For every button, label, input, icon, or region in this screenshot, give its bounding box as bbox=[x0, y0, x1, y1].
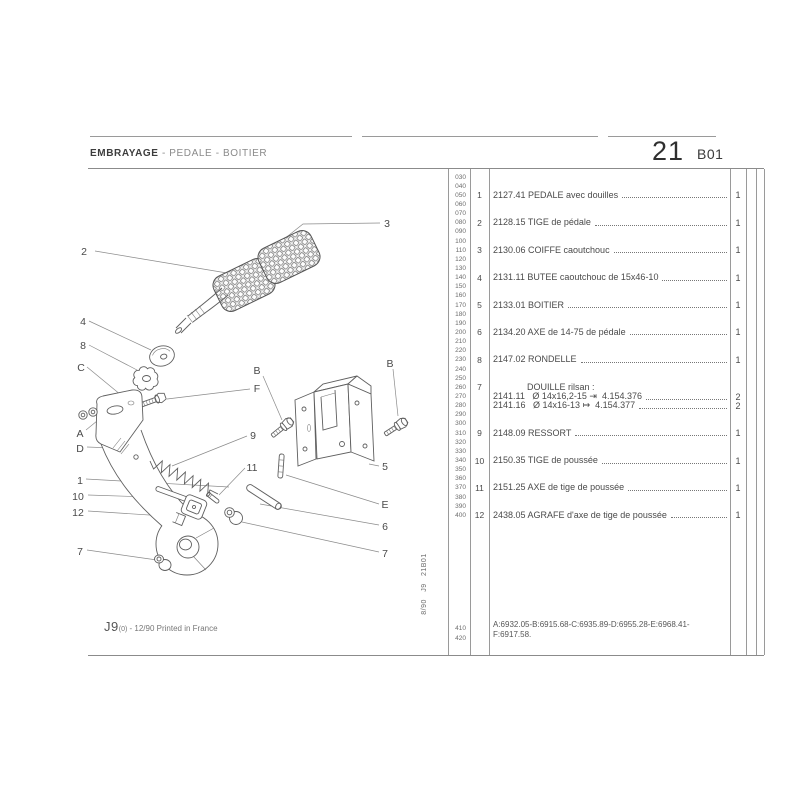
dotted-leader bbox=[662, 280, 727, 281]
rubber-stop-butee bbox=[147, 343, 176, 369]
part-row: 2438.05 AGRAFE d'axe de tige de poussée bbox=[493, 510, 729, 521]
table-sep-item-desc bbox=[489, 169, 490, 655]
part-row: 2148.09 RESSORT bbox=[493, 428, 729, 439]
dotted-leader bbox=[630, 334, 727, 335]
item-number: 7 bbox=[470, 382, 489, 392]
callout-10: 10 bbox=[72, 491, 84, 503]
callout-4: 4 bbox=[80, 316, 86, 328]
code-cell: 410 bbox=[448, 624, 466, 633]
qty-cell: 1 bbox=[730, 456, 746, 466]
dotted-leader bbox=[595, 225, 727, 226]
part-row: 2130.06 COIFFE caoutchouc bbox=[493, 245, 729, 256]
qty-cell: 1 bbox=[730, 273, 746, 283]
bushing-right bbox=[225, 508, 243, 525]
callout-b-right: B bbox=[386, 358, 393, 370]
table-sep-code-item bbox=[470, 169, 471, 655]
footer-model: J9 bbox=[104, 619, 119, 634]
bolt-b-right bbox=[382, 416, 409, 438]
part-text: 2130.06 COIFFE caoutchouc bbox=[493, 245, 610, 256]
item-number: 10 bbox=[470, 456, 489, 466]
item-number: 5 bbox=[470, 300, 489, 310]
exploded-diagram: 2 3 4 8 C B F B A D 1 10 12 7 9 11 5 E 6… bbox=[55, 175, 465, 605]
callout-d: D bbox=[76, 443, 84, 455]
item-number: 4 bbox=[470, 273, 489, 283]
part-text: 2151.25 AXE de tige de poussée bbox=[493, 482, 624, 493]
footnote-line-2: F:6917.58. bbox=[493, 630, 733, 640]
part-row: 2128.15 TIGE de pédale bbox=[493, 217, 729, 228]
dotted-leader bbox=[602, 463, 727, 464]
part-row: 2147.02 RONDELLE bbox=[493, 354, 729, 365]
callout-9: 9 bbox=[250, 430, 256, 442]
part-text: 2131.11 BUTEE caoutchouc de 15x46-10 bbox=[493, 272, 658, 283]
roll-pin-e bbox=[278, 454, 284, 478]
part-text: 2141.16 Ø 14x16-13 ↦ 4.154.377 bbox=[493, 400, 635, 411]
dotted-leader bbox=[581, 362, 727, 363]
top-rule-segment-1 bbox=[90, 136, 352, 137]
callout-7-left: 7 bbox=[77, 546, 83, 558]
qty-cell: 1 bbox=[730, 483, 746, 493]
part-row: 2141.16 Ø 14x16-13 ↦ 4.154.377 bbox=[493, 400, 729, 411]
item-number: 3 bbox=[470, 245, 489, 255]
page-footer: J9(0) - 12/90 Printed in France bbox=[104, 619, 218, 634]
item-number: 1 bbox=[470, 190, 489, 200]
table-extra-col-line bbox=[756, 169, 757, 655]
dotted-leader bbox=[622, 197, 727, 198]
footnote-line-1: A:6932.05-B:6915.68-C:6935.89-D:6955.28-… bbox=[493, 620, 733, 630]
dotted-leader bbox=[639, 408, 727, 409]
callout-8: 8 bbox=[80, 340, 86, 352]
dotted-leader bbox=[628, 490, 727, 491]
page-section-code: B01 bbox=[697, 146, 723, 162]
callout-2: 2 bbox=[81, 246, 87, 258]
header-rule bbox=[88, 168, 764, 169]
item-number: 6 bbox=[470, 327, 489, 337]
part-row: 2131.11 BUTEE caoutchouc de 15x46-10 bbox=[493, 272, 729, 283]
part-row: 2151.25 AXE de tige de poussée bbox=[493, 482, 729, 493]
callout-12: 12 bbox=[72, 507, 84, 519]
pedal-arm bbox=[96, 390, 218, 575]
callout-e: E bbox=[381, 499, 388, 511]
pedal-axle bbox=[245, 483, 282, 510]
part-row: 2133.01 BOITIER bbox=[493, 300, 729, 311]
qty-cell: 2 bbox=[730, 401, 746, 411]
item-number: 8 bbox=[470, 355, 489, 365]
callout-11: 11 bbox=[247, 462, 258, 474]
table-sep-qty-extra bbox=[746, 169, 747, 655]
qty-cell: 1 bbox=[730, 510, 746, 520]
part-row: 2150.35 TIGE de poussée bbox=[493, 455, 729, 466]
callout-7-right: 7 bbox=[382, 548, 388, 560]
code-cell: 420 bbox=[448, 634, 466, 643]
item-number: 12 bbox=[470, 510, 489, 520]
part-text: 2128.15 TIGE de pédale bbox=[493, 217, 591, 228]
boitier-housing bbox=[295, 376, 374, 466]
bolt-f bbox=[139, 391, 166, 409]
washers-a bbox=[79, 408, 97, 419]
dotted-leader bbox=[568, 307, 727, 308]
page-title-sub: - PEDALE - BOITIER bbox=[159, 148, 268, 159]
part-text: 2148.09 RESSORT bbox=[493, 428, 571, 439]
qty-cell: 1 bbox=[730, 300, 746, 310]
top-rule-segment-2 bbox=[362, 136, 598, 137]
page-number: 21 bbox=[652, 136, 684, 167]
qty-cell: 1 bbox=[730, 327, 746, 337]
part-text: 2150.35 TIGE de poussée bbox=[493, 455, 598, 466]
qty-cell: 1 bbox=[730, 245, 746, 255]
qty-cell: 1 bbox=[730, 428, 746, 438]
bottom-rule bbox=[88, 655, 764, 656]
footer-print-info: - 12/90 Printed in France bbox=[127, 624, 217, 633]
item-number: 2 bbox=[470, 218, 489, 228]
dotted-leader bbox=[614, 252, 727, 253]
part-text: 2134.20 AXE de 14-75 de pédale bbox=[493, 327, 626, 338]
part-text: 2438.05 AGRAFE d'axe de tige de poussée bbox=[493, 510, 667, 521]
page-title: EMBRAYAGE - PEDALE - BOITIER bbox=[90, 148, 267, 159]
callout-c: C bbox=[77, 362, 85, 374]
page-title-main: EMBRAYAGE bbox=[90, 148, 159, 159]
callout-3: 3 bbox=[384, 218, 390, 230]
footer-revision: (0) bbox=[119, 626, 128, 633]
qty-cell: 1 bbox=[730, 218, 746, 228]
part-text: 2127.41 PEDALE avec douilles bbox=[493, 190, 618, 201]
dotted-leader bbox=[575, 435, 727, 436]
washer-rondelle bbox=[133, 367, 158, 390]
item-number: 9 bbox=[470, 428, 489, 438]
part-text: 2147.02 RONDELLE bbox=[493, 354, 577, 365]
table-sep-desc-qty bbox=[730, 169, 731, 655]
callout-6: 6 bbox=[382, 521, 388, 533]
callout-1: 1 bbox=[77, 475, 83, 487]
dotted-leader bbox=[671, 517, 727, 518]
part-row: 2134.20 AXE de 14-75 de pédale bbox=[493, 327, 729, 338]
qty-cell: 1 bbox=[730, 190, 746, 200]
table-border-right bbox=[764, 169, 765, 655]
callout-b-left: B bbox=[253, 365, 260, 377]
item-number: 11 bbox=[470, 483, 489, 493]
callout-a: A bbox=[76, 428, 83, 440]
part-text: 2133.01 BOITIER bbox=[493, 300, 564, 311]
part-row: 2127.41 PEDALE avec douilles bbox=[493, 190, 729, 201]
qty-cell: 1 bbox=[730, 355, 746, 365]
callout-5: 5 bbox=[382, 461, 388, 473]
catalog-page: { "header": { "title_main": "EMBRAYAGE",… bbox=[0, 0, 800, 800]
callout-f: F bbox=[254, 383, 260, 395]
